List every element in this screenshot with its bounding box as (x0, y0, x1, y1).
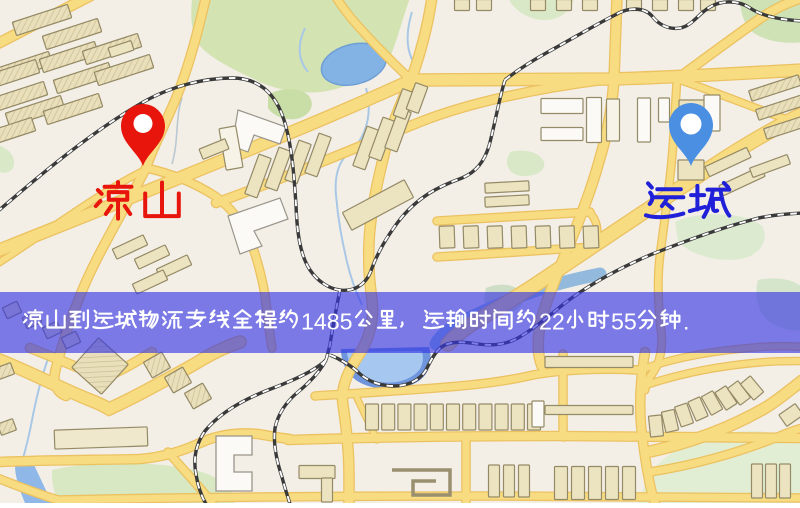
svg-text:1485: 1485 (301, 309, 353, 335)
svg-text:.: . (683, 309, 689, 335)
svg-text:22: 22 (539, 309, 565, 335)
svg-text:55: 55 (611, 309, 637, 335)
